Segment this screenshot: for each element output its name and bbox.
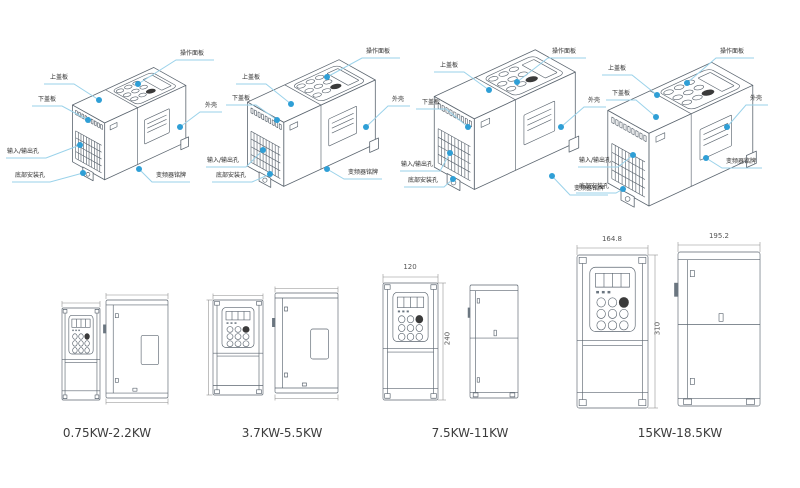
side-view-1: [103, 300, 168, 398]
dimension-lines-group-4: [577, 242, 760, 408]
callout-label-upper-cover: 上盖板: [242, 75, 260, 81]
callout-dot-bottom-mounting-holes: [450, 176, 456, 182]
technical-drawing-canvas: [0, 0, 800, 488]
callout-dot-upper-cover: [96, 97, 102, 103]
front-view-1: [62, 308, 100, 400]
callout-dot-inverter-nameplate: [136, 166, 142, 172]
callout-dot-housing: [724, 124, 730, 130]
dimension-front-width-3: 120: [398, 264, 422, 271]
callout-label-upper-cover: 上盖板: [608, 66, 626, 72]
callout-dot-io-holes: [630, 152, 636, 158]
callout-dot-housing: [558, 124, 564, 130]
callout-dot-operation-panel: [324, 74, 330, 80]
callout-dot-lower-cover: [653, 114, 659, 120]
callout-dot-housing: [177, 124, 183, 130]
callout-label-bottom-mounting-holes: 底部安装孔: [15, 173, 45, 179]
callout-label-operation-panel: 操作面板: [720, 49, 744, 55]
callout-dot-bottom-mounting-holes: [80, 170, 86, 176]
dimension-lines-group-1: [62, 293, 168, 405]
power-range-caption-1: 0.75KW-2.2KW: [55, 426, 159, 440]
callout-label-lower-cover: 下盖板: [38, 97, 56, 103]
callout-label-housing: 外壳: [588, 98, 600, 104]
callout-label-io-holes: 输入/输出孔: [401, 162, 433, 168]
inverter-isometric-view-1: [72, 67, 188, 180]
power-range-caption-3: 7.5KW-11KW: [418, 426, 522, 440]
callout-label-lower-cover: 下盖板: [232, 96, 250, 102]
front-view-4: [577, 255, 648, 408]
callout-dot-operation-panel: [135, 81, 141, 87]
callout-label-upper-cover: 上盖板: [440, 63, 458, 69]
callout-label-inverter-nameplate: 变频器铭牌: [348, 170, 378, 176]
callout-dot-upper-cover: [654, 92, 660, 98]
callout-dot-bottom-mounting-holes: [620, 186, 626, 192]
inverter-isometric-view-3: [434, 50, 578, 191]
dimension-lines-group-2: [207, 287, 339, 401]
callout-dot-operation-panel: [514, 79, 520, 85]
callout-label-lower-cover: 下盖板: [422, 100, 440, 106]
callout-label-operation-panel: 操作面板: [366, 49, 390, 55]
callout-dot-lower-cover: [274, 117, 280, 123]
callout-dot-bottom-mounting-holes: [267, 171, 273, 177]
callout-label-inverter-nameplate: 变频器铭牌: [156, 173, 186, 179]
callout-dot-inverter-nameplate: [703, 155, 709, 161]
callout-dot-inverter-nameplate: [549, 173, 555, 179]
callout-label-operation-panel: 操作面板: [180, 51, 204, 57]
callout-dot-io-holes: [447, 150, 453, 156]
callout-dot-io-holes: [260, 147, 266, 153]
page: 操作面板 上盖板 下盖板 外壳 输入/输出孔 底部安装孔 变频器铭牌 操作面板 …: [0, 0, 800, 488]
callout-label-operation-panel: 操作面板: [552, 49, 576, 55]
callout-label-housing: 外壳: [205, 103, 217, 109]
front-view-3: [383, 283, 438, 400]
callout-label-bottom-mounting-holes: 底部安装孔: [216, 173, 246, 179]
callout-dot-operation-panel: [684, 80, 690, 86]
power-range-caption-2: 3.7KW-5.5KW: [230, 426, 334, 440]
front-view-2: [213, 300, 263, 395]
dimension-height-3: 240: [445, 327, 452, 351]
callout-dot-inverter-nameplate: [324, 166, 330, 172]
callout-dot-io-holes: [77, 142, 83, 148]
callout-label-bottom-mounting-holes: 底部安装孔: [579, 184, 609, 190]
callout-label-housing: 外壳: [750, 96, 762, 102]
dimension-lines-group-3: [383, 274, 446, 400]
callout-label-upper-cover: 上盖板: [50, 75, 68, 81]
callout-label-housing: 外壳: [392, 97, 404, 103]
callout-label-io-holes: 输入/输出孔: [207, 158, 239, 164]
dimension-height-4: 310: [655, 317, 662, 341]
callout-dot-upper-cover: [486, 87, 492, 93]
callout-label-bottom-mounting-holes: 底部安装孔: [408, 178, 438, 184]
callout-dot-upper-cover: [288, 101, 294, 107]
dimension-side-depth-4: 195.2: [701, 233, 737, 240]
side-view-4: [674, 252, 760, 406]
dimension-front-width-4: 164.8: [594, 236, 630, 243]
side-view-3: [468, 285, 518, 398]
callout-label-lower-cover: 下盖板: [612, 91, 630, 97]
callout-dot-lower-cover: [465, 124, 471, 130]
inverter-isometric-view-4: [608, 62, 757, 207]
callout-label-io-holes: 输入/输出孔: [579, 158, 611, 164]
callout-label-io-holes: 输入/输出孔: [7, 149, 39, 155]
power-range-caption-4: 15KW-18.5KW: [628, 426, 732, 440]
callout-label-inverter-nameplate: 变频器铭牌: [726, 159, 756, 165]
callout-dot-lower-cover: [85, 117, 91, 123]
callout-dot-housing: [363, 124, 369, 130]
side-view-2: [272, 293, 338, 393]
